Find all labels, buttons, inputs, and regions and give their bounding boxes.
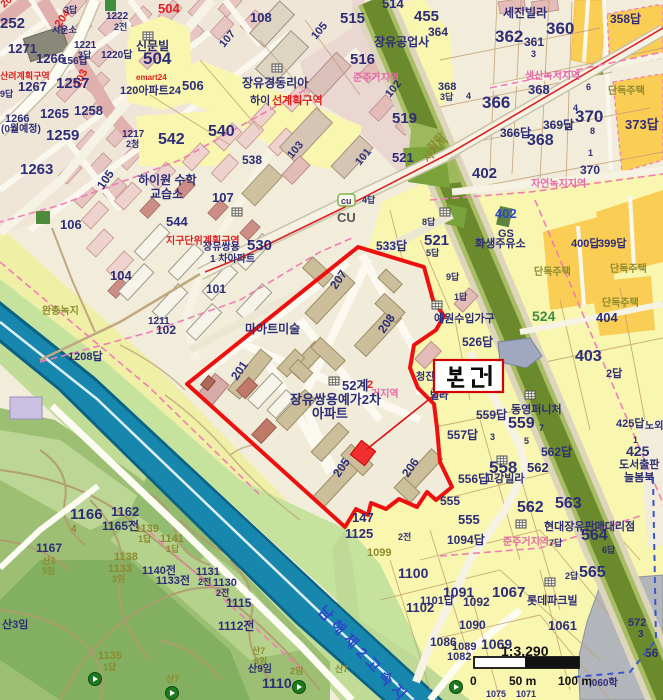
svg-text:(0월예정): (0월예정) [1, 122, 41, 135]
svg-text:521: 521 [392, 150, 414, 165]
svg-text:장유쌍용예가2차: 장유쌍용예가2차 [290, 392, 381, 407]
svg-text:시운소: 시운소 [52, 25, 78, 35]
svg-text:선계획구역: 선계획구역 [272, 93, 323, 107]
svg-text:364: 364 [428, 25, 448, 39]
svg-text:399답: 399답 [598, 236, 626, 250]
svg-text:100 m: 100 m [558, 674, 592, 688]
svg-text:400답: 400답 [571, 236, 599, 250]
svg-text:준주거지역: 준주거지역 [503, 535, 549, 548]
svg-text:106: 106 [60, 217, 82, 232]
svg-text:단독주택: 단독주택 [610, 262, 647, 275]
svg-text:2답: 2답 [565, 570, 579, 581]
svg-text:1267: 1267 [18, 79, 47, 94]
svg-text:1257: 1257 [56, 75, 89, 92]
svg-text:7: 7 [539, 423, 544, 433]
svg-text:559답: 559답 [476, 407, 507, 422]
svg-text:1110: 1110 [262, 675, 292, 691]
svg-text:장유공업사: 장유공업사 [374, 34, 429, 49]
svg-text:마아트미술: 마아트미술 [245, 321, 300, 336]
svg-text:3: 3 [638, 629, 644, 640]
svg-text:예원수입가구: 예원수입가구 [434, 311, 495, 325]
svg-text:455: 455 [414, 8, 439, 25]
svg-text:559: 559 [508, 415, 535, 432]
svg-text:노외: 노외 [645, 420, 663, 432]
svg-text:538: 538 [242, 153, 262, 167]
svg-text:cu: cu [341, 196, 352, 206]
svg-text:6: 6 [586, 82, 591, 92]
svg-text:2임: 2임 [290, 665, 303, 676]
svg-text:2전: 2전 [114, 21, 127, 32]
svg-text:358답: 358답 [610, 11, 641, 26]
svg-text:세진빌라: 세진빌라 [503, 5, 547, 20]
svg-text:156답: 156답 [62, 55, 89, 67]
svg-text:1075: 1075 [486, 689, 506, 699]
svg-text:368: 368 [528, 82, 550, 97]
svg-text:1094답: 1094답 [447, 532, 485, 547]
svg-text:50 m: 50 m [509, 674, 536, 688]
svg-text:3: 3 [490, 432, 495, 442]
svg-text:1222: 1222 [106, 11, 129, 22]
svg-text:2전: 2전 [198, 576, 211, 587]
svg-text:504: 504 [158, 1, 180, 16]
svg-text:5: 5 [524, 436, 529, 446]
svg-text:장유경동리아: 장유경동리아 [242, 75, 308, 90]
svg-text:8답: 8답 [422, 216, 436, 227]
svg-text:2전: 2전 [398, 531, 411, 542]
svg-text:9답: 9답 [0, 88, 14, 99]
svg-text:402: 402 [472, 165, 497, 182]
svg-text:1166: 1166 [70, 506, 103, 523]
svg-text:1263: 1263 [20, 161, 53, 178]
svg-text:370: 370 [580, 163, 600, 177]
svg-text:1167: 1167 [36, 541, 62, 555]
svg-text:572: 572 [628, 617, 646, 629]
svg-text:1: 1 [633, 435, 638, 445]
svg-text:565: 565 [579, 564, 606, 581]
svg-text:56: 56 [645, 646, 659, 660]
svg-text:4답: 4답 [362, 194, 376, 205]
svg-text:5답: 5답 [426, 247, 440, 258]
svg-text:1061: 1061 [548, 618, 577, 633]
svg-text:1265: 1265 [40, 106, 69, 121]
svg-text:1258: 1258 [74, 103, 103, 118]
svg-text:1112전: 1112전 [218, 618, 254, 633]
svg-text:524: 524 [532, 308, 556, 324]
svg-text:1266: 1266 [36, 51, 65, 66]
svg-text:1답: 1답 [454, 291, 468, 302]
svg-text:산9임: 산9임 [248, 662, 272, 675]
svg-text:52계: 52계 [342, 378, 368, 393]
svg-text:1082: 1082 [447, 651, 471, 663]
svg-text:515: 515 [340, 10, 365, 27]
svg-text:1133전: 1133전 [156, 573, 190, 587]
svg-text:1: 1 [588, 148, 593, 158]
svg-text:자연녹지지역: 자연녹지지역 [531, 177, 586, 190]
svg-text:8: 8 [590, 126, 595, 136]
svg-text:2: 2 [566, 122, 571, 132]
svg-text:564: 564 [581, 527, 608, 544]
svg-text:366: 366 [482, 93, 510, 112]
svg-text:101: 101 [206, 282, 226, 296]
svg-text:0: 0 [470, 674, 477, 688]
svg-text:산7: 산7 [166, 673, 179, 684]
svg-text:5임: 5임 [42, 565, 55, 576]
svg-text:2청: 2청 [126, 138, 139, 149]
svg-text:530: 530 [247, 237, 272, 254]
svg-text:1138: 1138 [114, 551, 138, 563]
svg-text:3답: 3답 [440, 91, 454, 102]
svg-text:3: 3 [531, 49, 536, 59]
svg-text:555: 555 [458, 512, 480, 527]
svg-text:1답: 1답 [138, 533, 152, 544]
svg-text:4: 4 [71, 524, 77, 535]
svg-text:1271: 1271 [8, 41, 37, 56]
svg-text:526답: 526답 [462, 334, 493, 349]
svg-text:4: 4 [573, 103, 578, 113]
svg-text:하이원 수학: 하이원 수학 [138, 172, 197, 187]
svg-text:emart24: emart24 [136, 73, 167, 82]
svg-text:단독주택: 단독주택 [608, 84, 645, 97]
svg-text:147: 147 [352, 510, 374, 525]
svg-text:425답: 425답 [616, 416, 644, 430]
svg-text:1 차아파트: 1 차아파트 [210, 252, 255, 265]
svg-text:555: 555 [440, 494, 460, 508]
svg-text:514: 514 [382, 0, 404, 11]
svg-text:고강빌라: 고강빌라 [484, 471, 525, 485]
svg-text:1162: 1162 [111, 504, 139, 519]
svg-text:1답: 1답 [103, 661, 117, 672]
svg-text:252: 252 [0, 15, 25, 32]
svg-text:4: 4 [466, 91, 471, 101]
svg-text:교습소: 교습소 [150, 187, 183, 201]
svg-text:563: 563 [555, 495, 582, 512]
svg-text:1135: 1135 [98, 650, 122, 662]
svg-text:368: 368 [527, 132, 554, 149]
svg-text:540: 540 [208, 123, 235, 140]
svg-text:롯데파크빌: 롯데파크빌 [527, 593, 578, 607]
svg-text:1102: 1102 [406, 600, 434, 615]
svg-text:청진: 청진 [416, 370, 434, 383]
svg-text:403: 403 [575, 348, 602, 365]
svg-text:562: 562 [517, 499, 544, 516]
svg-text:102: 102 [156, 323, 176, 337]
svg-text:425: 425 [626, 443, 650, 459]
svg-text:생산녹지지역: 생산녹지지역 [525, 69, 580, 82]
svg-text:,060학: ,060학 [589, 676, 618, 689]
svg-text:1071: 1071 [516, 689, 536, 699]
svg-text:1100: 1100 [398, 565, 429, 581]
svg-text:도서출판: 도서출판 [619, 457, 659, 471]
svg-text:519: 519 [392, 110, 417, 127]
svg-text:404: 404 [596, 310, 618, 325]
svg-text:3임: 3임 [112, 573, 125, 584]
svg-text:544: 544 [166, 214, 188, 229]
svg-text:산7: 산7 [335, 663, 348, 674]
svg-text:1259: 1259 [46, 127, 79, 144]
svg-text:산7: 산7 [252, 645, 265, 656]
svg-text:360: 360 [546, 19, 574, 38]
svg-text:단독주택: 단독주택 [534, 265, 571, 278]
svg-text:370: 370 [575, 107, 603, 126]
svg-text:1답: 1답 [166, 543, 180, 554]
svg-text:CU: CU [337, 210, 356, 225]
svg-text:1125: 1125 [345, 526, 373, 541]
svg-text:361: 361 [524, 35, 544, 49]
svg-text:104: 104 [110, 268, 132, 283]
svg-text:108: 108 [250, 10, 272, 25]
svg-text:6답: 6답 [602, 544, 616, 555]
svg-text:516: 516 [350, 51, 375, 68]
svg-text:362: 362 [495, 27, 523, 46]
svg-text:7답: 7답 [549, 537, 563, 548]
svg-text:521: 521 [424, 232, 449, 249]
svg-text:2답: 2답 [606, 366, 622, 380]
svg-text:120아파트24: 120아파트24 [120, 83, 182, 97]
svg-text:3답: 3답 [64, 4, 78, 15]
svg-text:557답: 557답 [447, 427, 478, 442]
svg-text:단독주택: 단독주택 [602, 296, 639, 309]
svg-text:동영퍼니처: 동영퍼니처 [511, 402, 562, 416]
svg-text:화생주유소: 화생주유소 [475, 236, 526, 250]
svg-text:402: 402 [495, 206, 517, 221]
svg-text:늘봄북: 늘봄북 [624, 470, 654, 484]
svg-text:완충녹지: 완충녹지 [42, 304, 79, 317]
svg-text:107: 107 [212, 190, 234, 205]
svg-text:1067: 1067 [492, 584, 525, 601]
svg-text:산3임: 산3임 [2, 617, 28, 631]
svg-text:산3: 산3 [42, 555, 55, 566]
svg-text:9답: 9답 [446, 271, 460, 282]
svg-text:1220답: 1220답 [101, 49, 133, 61]
svg-text:542: 542 [158, 131, 185, 148]
svg-text:산려계획구역: 산려계획구역 [0, 70, 50, 81]
svg-text:하이: 하이 [250, 93, 270, 107]
svg-text:아파트: 아파트 [312, 406, 348, 421]
svg-text:533답: 533답 [376, 238, 407, 253]
svg-text:562답: 562답 [541, 444, 572, 459]
svg-text:1165전: 1165전 [102, 518, 139, 533]
svg-text:562: 562 [527, 460, 549, 475]
svg-text:1099: 1099 [367, 547, 391, 559]
svg-text:504: 504 [143, 49, 172, 68]
svg-text:1115: 1115 [226, 596, 252, 610]
svg-text:1090: 1090 [459, 618, 486, 632]
svg-text:장유쌍용: 장유쌍용 [203, 240, 240, 253]
svg-text:1208답: 1208답 [68, 349, 103, 363]
svg-text:373답: 373답 [625, 117, 659, 132]
svg-text:506: 506 [182, 78, 204, 93]
svg-text:1092: 1092 [463, 595, 490, 609]
